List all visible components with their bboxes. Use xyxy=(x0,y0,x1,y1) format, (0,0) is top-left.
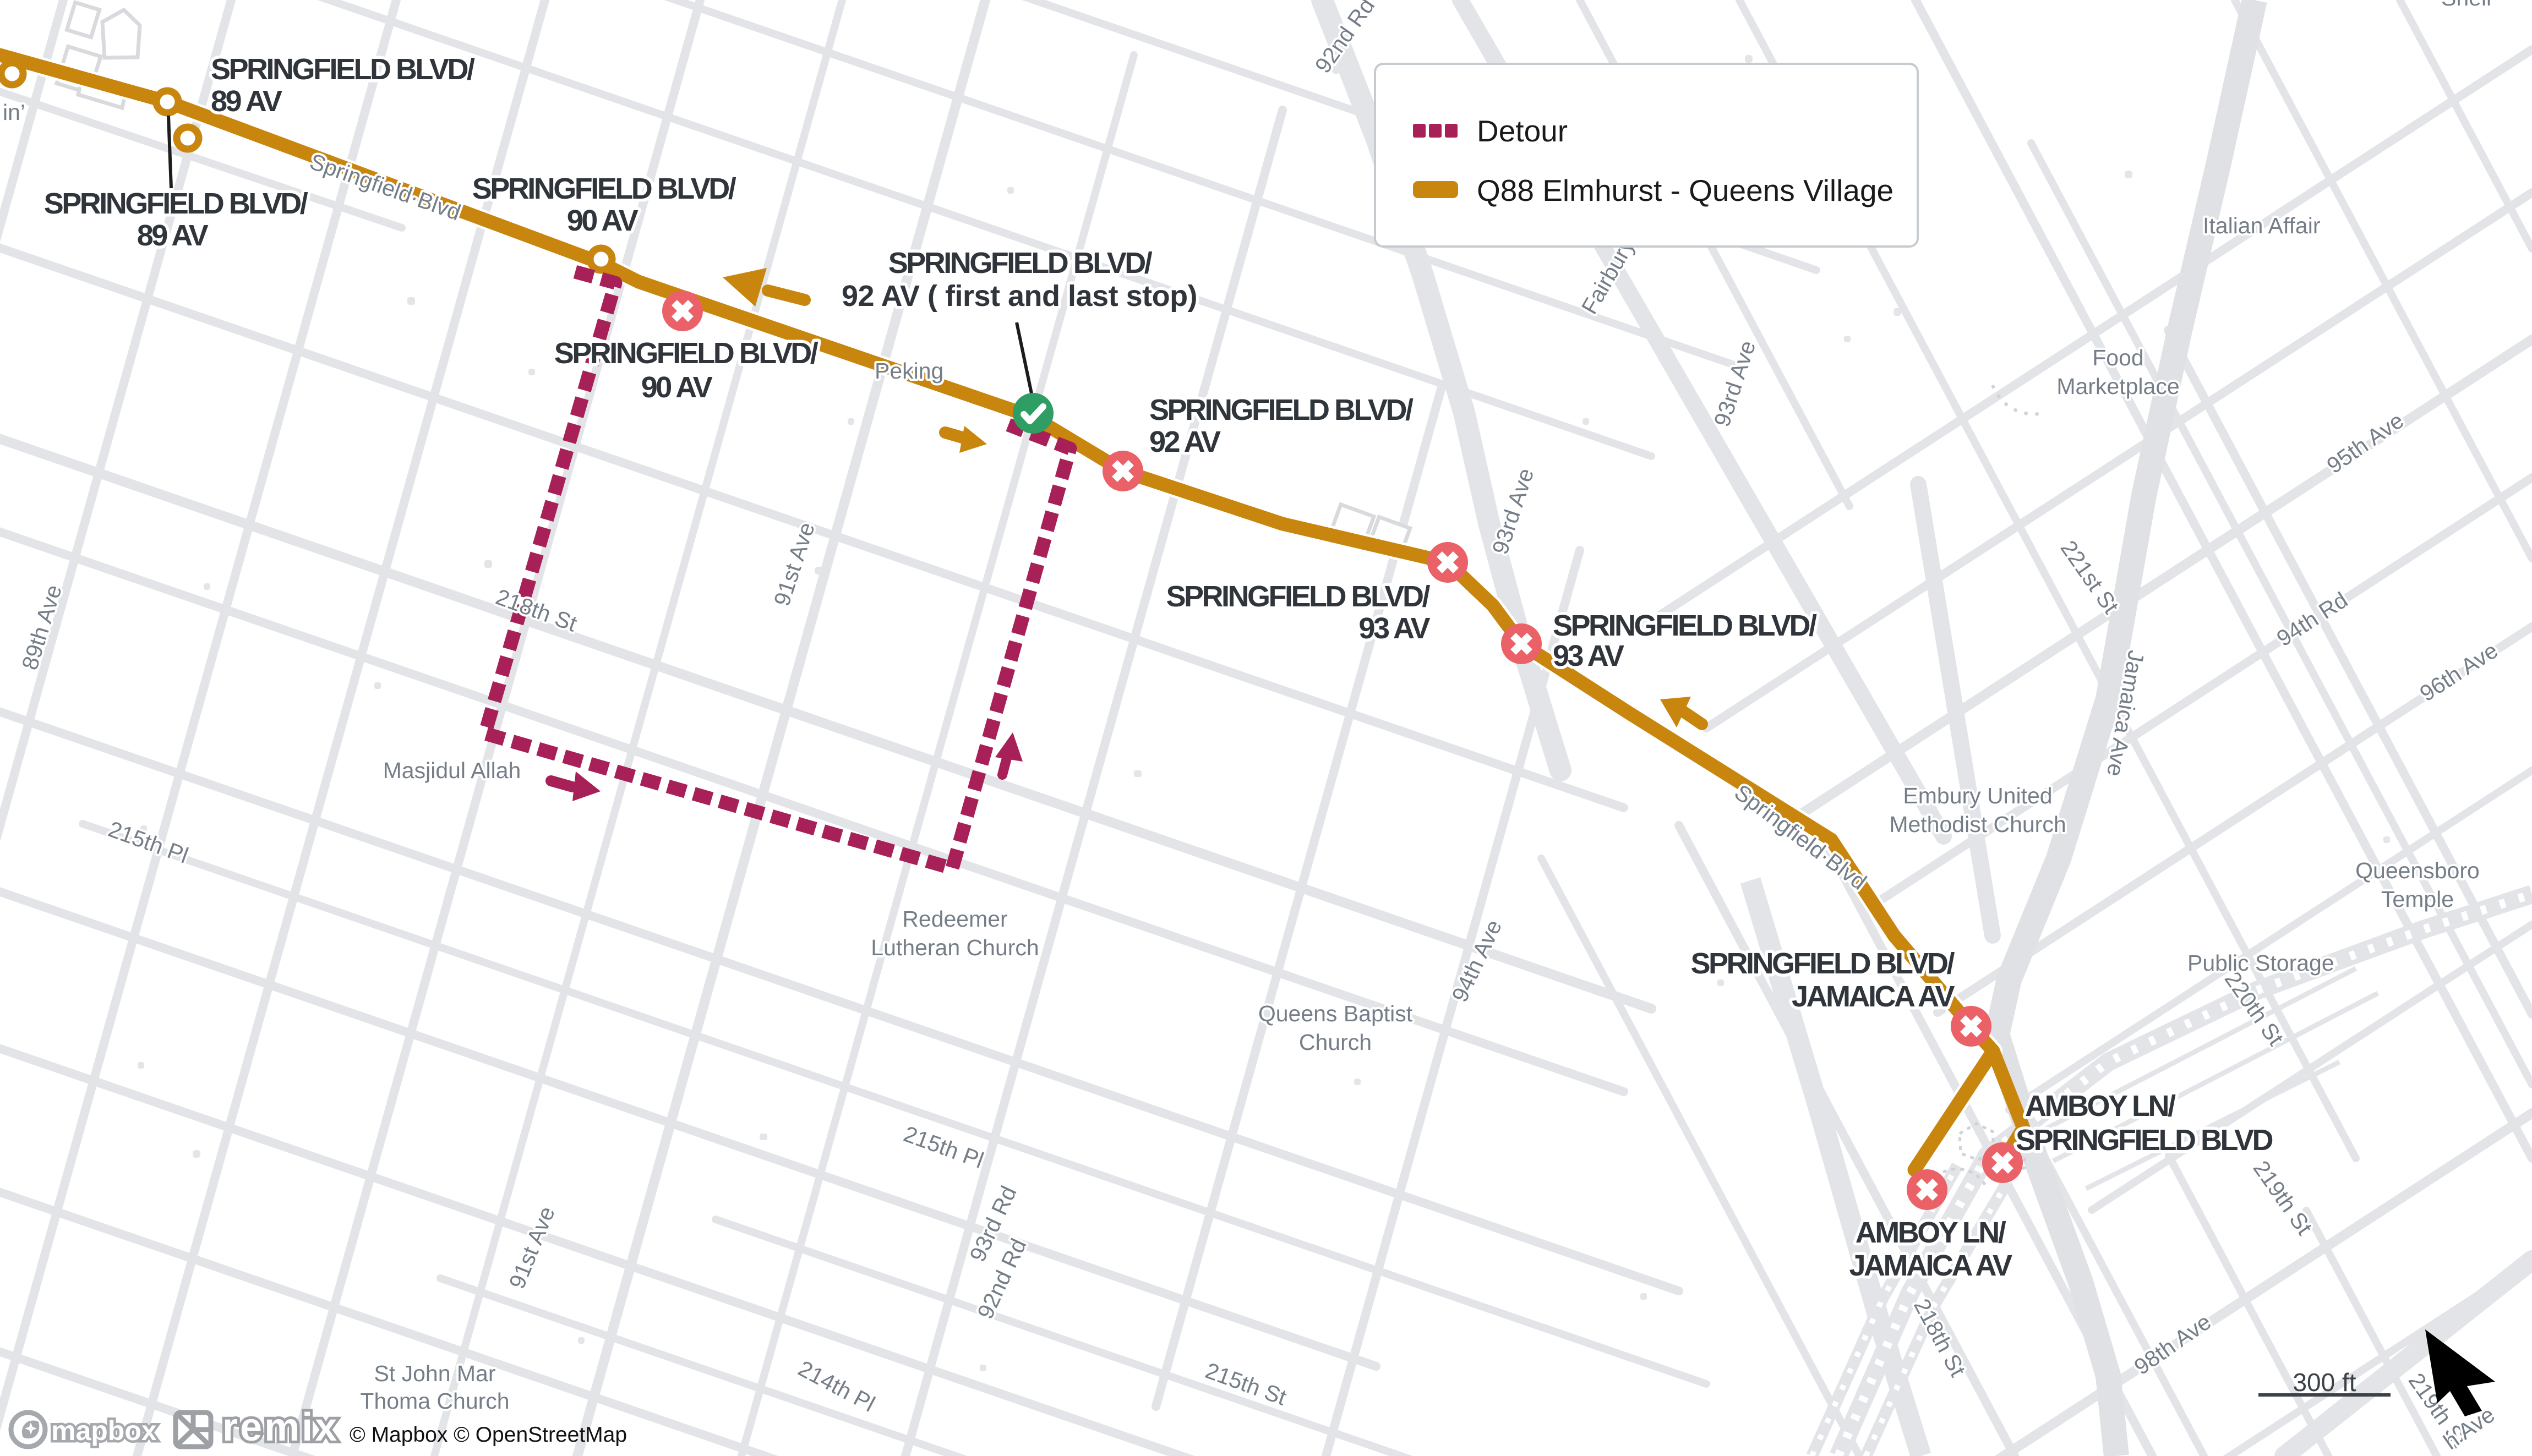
svg-text:92 AV ( first and last stop): 92 AV ( first and last stop) xyxy=(842,280,1197,313)
svg-text:© Mapbox © OpenStreetMap: © Mapbox © OpenStreetMap xyxy=(350,1423,627,1447)
svg-text:Church: Church xyxy=(1299,1030,1372,1055)
svg-text:Queensboro: Queensboro xyxy=(2355,858,2480,883)
svg-text:SPRINGFIELD BLVD/: SPRINGFIELD BLVD/ xyxy=(1149,393,1414,426)
svg-text:Peking: Peking xyxy=(875,358,943,384)
svg-text:SPRINGFIELD BLVD/: SPRINGFIELD BLVD/ xyxy=(44,187,308,220)
svg-text:SPRINGFIELD BLVD: SPRINGFIELD BLVD xyxy=(2016,1124,2273,1157)
svg-text:JAMAICA AV: JAMAICA AV xyxy=(1849,1249,2012,1282)
svg-text:Queens Baptist: Queens Baptist xyxy=(1258,1001,1413,1026)
svg-text:Redeemer: Redeemer xyxy=(902,906,1007,932)
svg-text:in’: in’ xyxy=(3,100,25,125)
svg-text:SPRINGFIELD BLVD/: SPRINGFIELD BLVD/ xyxy=(554,337,818,370)
svg-text:SPRINGFIELD BLVD/: SPRINGFIELD BLVD/ xyxy=(1690,947,1955,980)
svg-text:93 AV: 93 AV xyxy=(1553,639,1624,672)
svg-text:90 AV: 90 AV xyxy=(641,371,713,404)
svg-text:Italian Affair: Italian Affair xyxy=(2203,213,2321,238)
svg-text:Methodist Church: Methodist Church xyxy=(1889,812,2066,837)
svg-text:89 AV: 89 AV xyxy=(137,219,209,252)
svg-text:Marketplace: Marketplace xyxy=(2056,374,2179,399)
svg-text:Q88 Elmhurst - Queens Village: Q88 Elmhurst - Queens Village xyxy=(1477,173,1893,207)
svg-text:SPRINGFIELD BLVD/: SPRINGFIELD BLVD/ xyxy=(211,53,475,86)
svg-text:SPRINGFIELD BLVD/: SPRINGFIELD BLVD/ xyxy=(472,172,736,205)
svg-text:93 AV: 93 AV xyxy=(1358,612,1430,645)
svg-text:SPRINGFIELD BLVD/: SPRINGFIELD BLVD/ xyxy=(888,247,1153,280)
svg-text:Masjidul Allah: Masjidul Allah xyxy=(383,758,521,783)
svg-text:remix: remix xyxy=(222,1405,339,1449)
svg-text:Shell: Shell xyxy=(2441,0,2491,10)
svg-text:Thoma Church: Thoma Church xyxy=(360,1388,509,1414)
svg-text:AMBOY LN/: AMBOY LN/ xyxy=(1856,1216,2006,1249)
svg-text:300 ft: 300 ft xyxy=(2293,1368,2356,1397)
svg-text:Food: Food xyxy=(2092,345,2143,370)
svg-text:mapbox: mapbox xyxy=(51,1415,157,1446)
svg-text:Detour: Detour xyxy=(1477,114,1568,148)
svg-text:90 AV: 90 AV xyxy=(567,204,639,237)
svg-text:SPRINGFIELD BLVD/: SPRINGFIELD BLVD/ xyxy=(1553,609,1817,642)
svg-text:89 AV: 89 AV xyxy=(211,85,282,118)
svg-text:SPRINGFIELD BLVD/: SPRINGFIELD BLVD/ xyxy=(1166,580,1430,613)
svg-text:AMBOY LN/: AMBOY LN/ xyxy=(2025,1090,2176,1123)
svg-text:JAMAICA AV: JAMAICA AV xyxy=(1792,980,1955,1013)
svg-text:92 AV: 92 AV xyxy=(1149,425,1221,458)
svg-text:Temple: Temple xyxy=(2381,886,2454,912)
svg-text:St John Mar: St John Mar xyxy=(374,1361,495,1386)
svg-text:Embury United: Embury United xyxy=(1903,783,2052,808)
svg-text:Public Storage: Public Storage xyxy=(2187,950,2334,976)
svg-text:Lutheran Church: Lutheran Church xyxy=(871,935,1039,960)
